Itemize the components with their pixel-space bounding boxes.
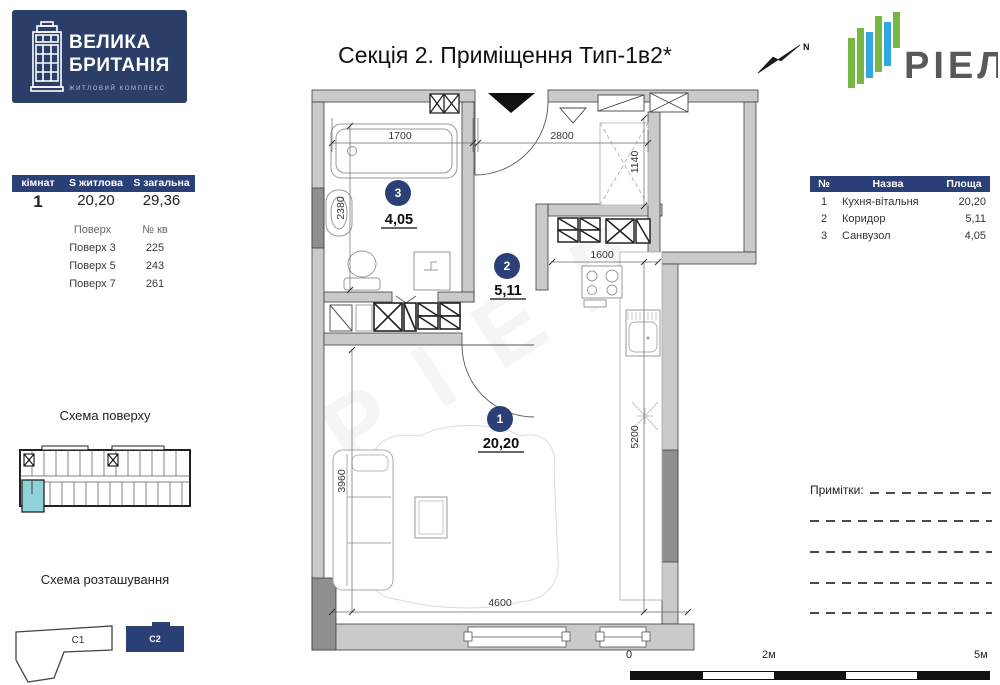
dim-1600: 1600 xyxy=(590,249,614,261)
window xyxy=(464,627,650,647)
appliance-row xyxy=(330,303,460,331)
coffee-table xyxy=(415,497,447,538)
dim-1700: 1700 xyxy=(388,130,412,142)
room-area-1: 20,20 xyxy=(483,436,519,452)
entrance-door-arc xyxy=(475,102,548,175)
kitchen-cabinets xyxy=(558,218,650,243)
wall-window-icon xyxy=(560,108,586,123)
shelf-icon xyxy=(598,95,644,111)
dim-4600: 4600 xyxy=(488,597,512,609)
room-area-3: 4,05 xyxy=(385,212,413,228)
dim-2800: 2800 xyxy=(550,130,574,142)
bath-door-mark xyxy=(396,296,416,303)
dim-5200: 5200 xyxy=(629,425,641,449)
room-badge-1-num: 1 xyxy=(497,412,504,426)
kitchen-sink-icon xyxy=(626,310,660,356)
floor-plan: 1700 2800 1140 2380 1600 3960 5200 4600 … xyxy=(0,0,1000,685)
wardrobe-top-icon xyxy=(650,93,688,112)
dim-2380: 2380 xyxy=(335,196,347,220)
kitchen-counter xyxy=(620,252,662,600)
dim-3960: 3960 xyxy=(336,469,348,493)
rug-outline xyxy=(370,425,558,607)
stove-icon xyxy=(582,266,622,307)
room-area-2: 5,11 xyxy=(494,283,521,299)
entrance-marker xyxy=(488,93,535,113)
sink-cabinet-icon xyxy=(414,252,450,290)
dim-1140: 1140 xyxy=(629,151,641,174)
toilet-icon xyxy=(344,251,380,290)
room-badge-3-num: 3 xyxy=(395,186,402,200)
vent-shaft-icon xyxy=(430,94,459,113)
room-badge-2-num: 2 xyxy=(504,259,511,273)
floor-plan-sheet: РІЕЛ ВЕЛИКА БРИТАНІЯ ЖИТЛОВИЙ КОМПЛЕКС С… xyxy=(0,0,1000,685)
